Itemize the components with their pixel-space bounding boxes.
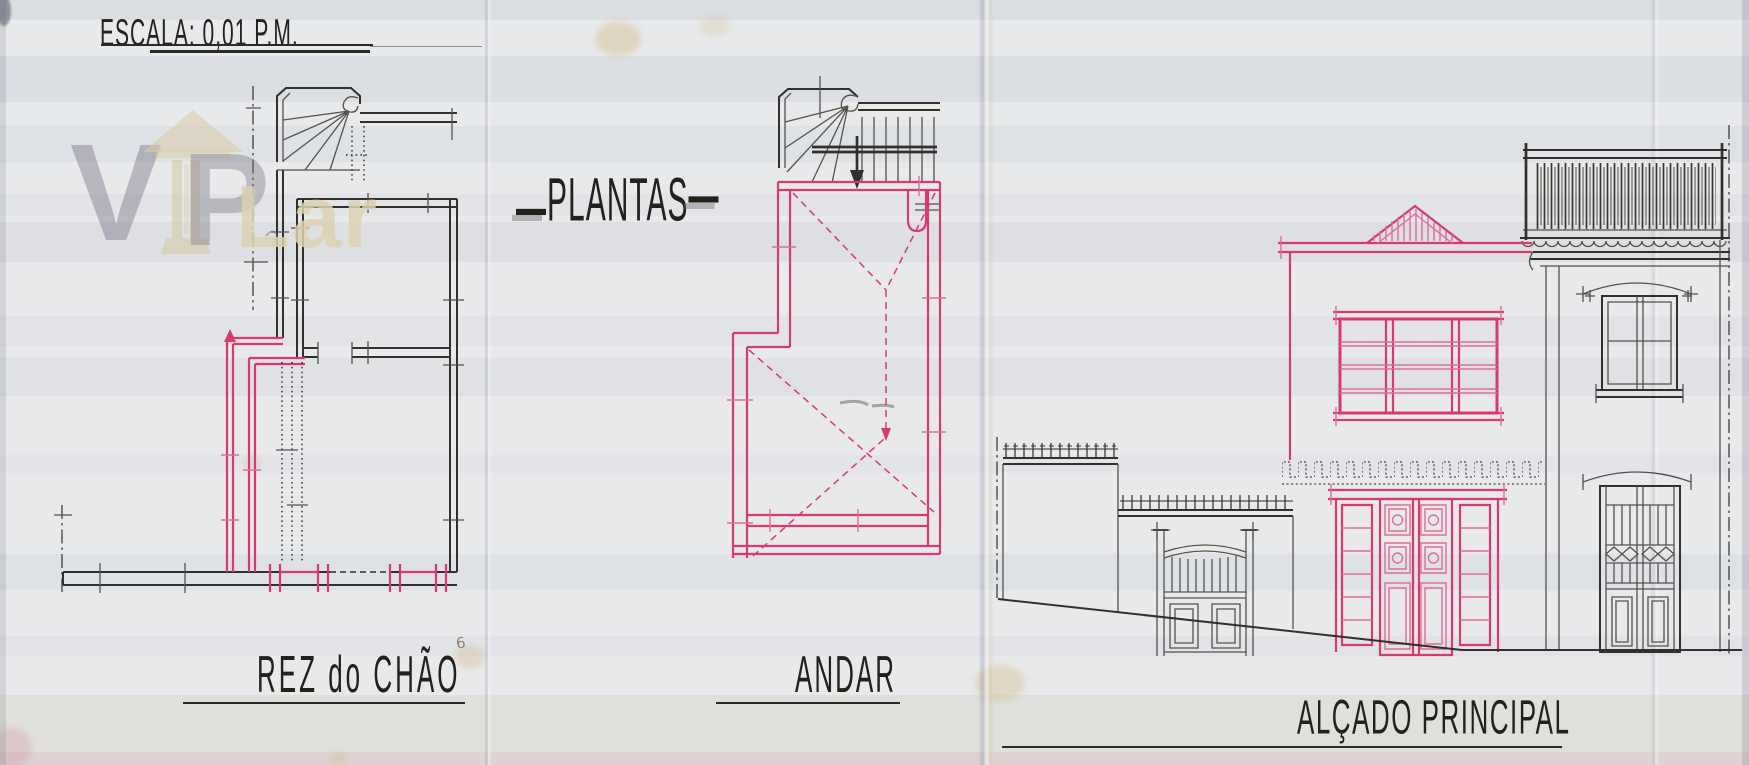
upper-new-walls-pink	[727, 176, 946, 558]
ink-scribble	[266, 231, 277, 240]
existing-upper-window	[1576, 283, 1698, 403]
ground-new-walls-pink	[221, 329, 446, 592]
plans-title-text: PLANTAS	[547, 167, 689, 235]
new-facade-pink	[1278, 206, 1532, 655]
new-upper-window	[1333, 306, 1504, 426]
plans-title: —PLANTAS—	[516, 167, 720, 237]
ground-line	[998, 599, 1742, 650]
existing-door	[1583, 472, 1691, 652]
upper-floor-label: ANDAR	[795, 644, 896, 706]
main-elevation	[997, 125, 1742, 656]
street-wall-left	[997, 437, 1293, 629]
first-floor-plan	[727, 76, 946, 558]
azulejo-frieze	[1282, 461, 1545, 484]
ground-floor-label: REZ do CHÃO	[257, 644, 461, 706]
scale-note: ESCALA: 0,01 P.M.	[100, 13, 299, 56]
scanned-drawing-sheet: V P Lar ESCALA: 0,01 P.M. —PLANTAS— REZ …	[0, 0, 1749, 765]
title-dash-left: —	[516, 175, 547, 245]
iron-gate	[1151, 522, 1259, 656]
ground-corridor	[346, 108, 457, 182]
title-dash-right: —	[689, 163, 720, 233]
ground-boundary-dashdot	[244, 86, 268, 310]
elevation-label: ALÇADO PRINCIPAL	[1297, 689, 1570, 746]
wall-railing-b	[1120, 495, 1291, 510]
wall-railing-a	[1004, 443, 1116, 458]
ground-stair	[277, 88, 360, 170]
upper-stair	[779, 76, 940, 183]
new-entrance-door	[1328, 484, 1507, 655]
roof-balustrade	[1520, 143, 1730, 240]
ground-demolition-dotted	[276, 362, 308, 562]
ground-black-walls	[271, 170, 464, 572]
roof-tile-scallops	[1522, 241, 1726, 247]
ground-floor-plan	[54, 86, 464, 593]
pediment	[1367, 206, 1463, 243]
